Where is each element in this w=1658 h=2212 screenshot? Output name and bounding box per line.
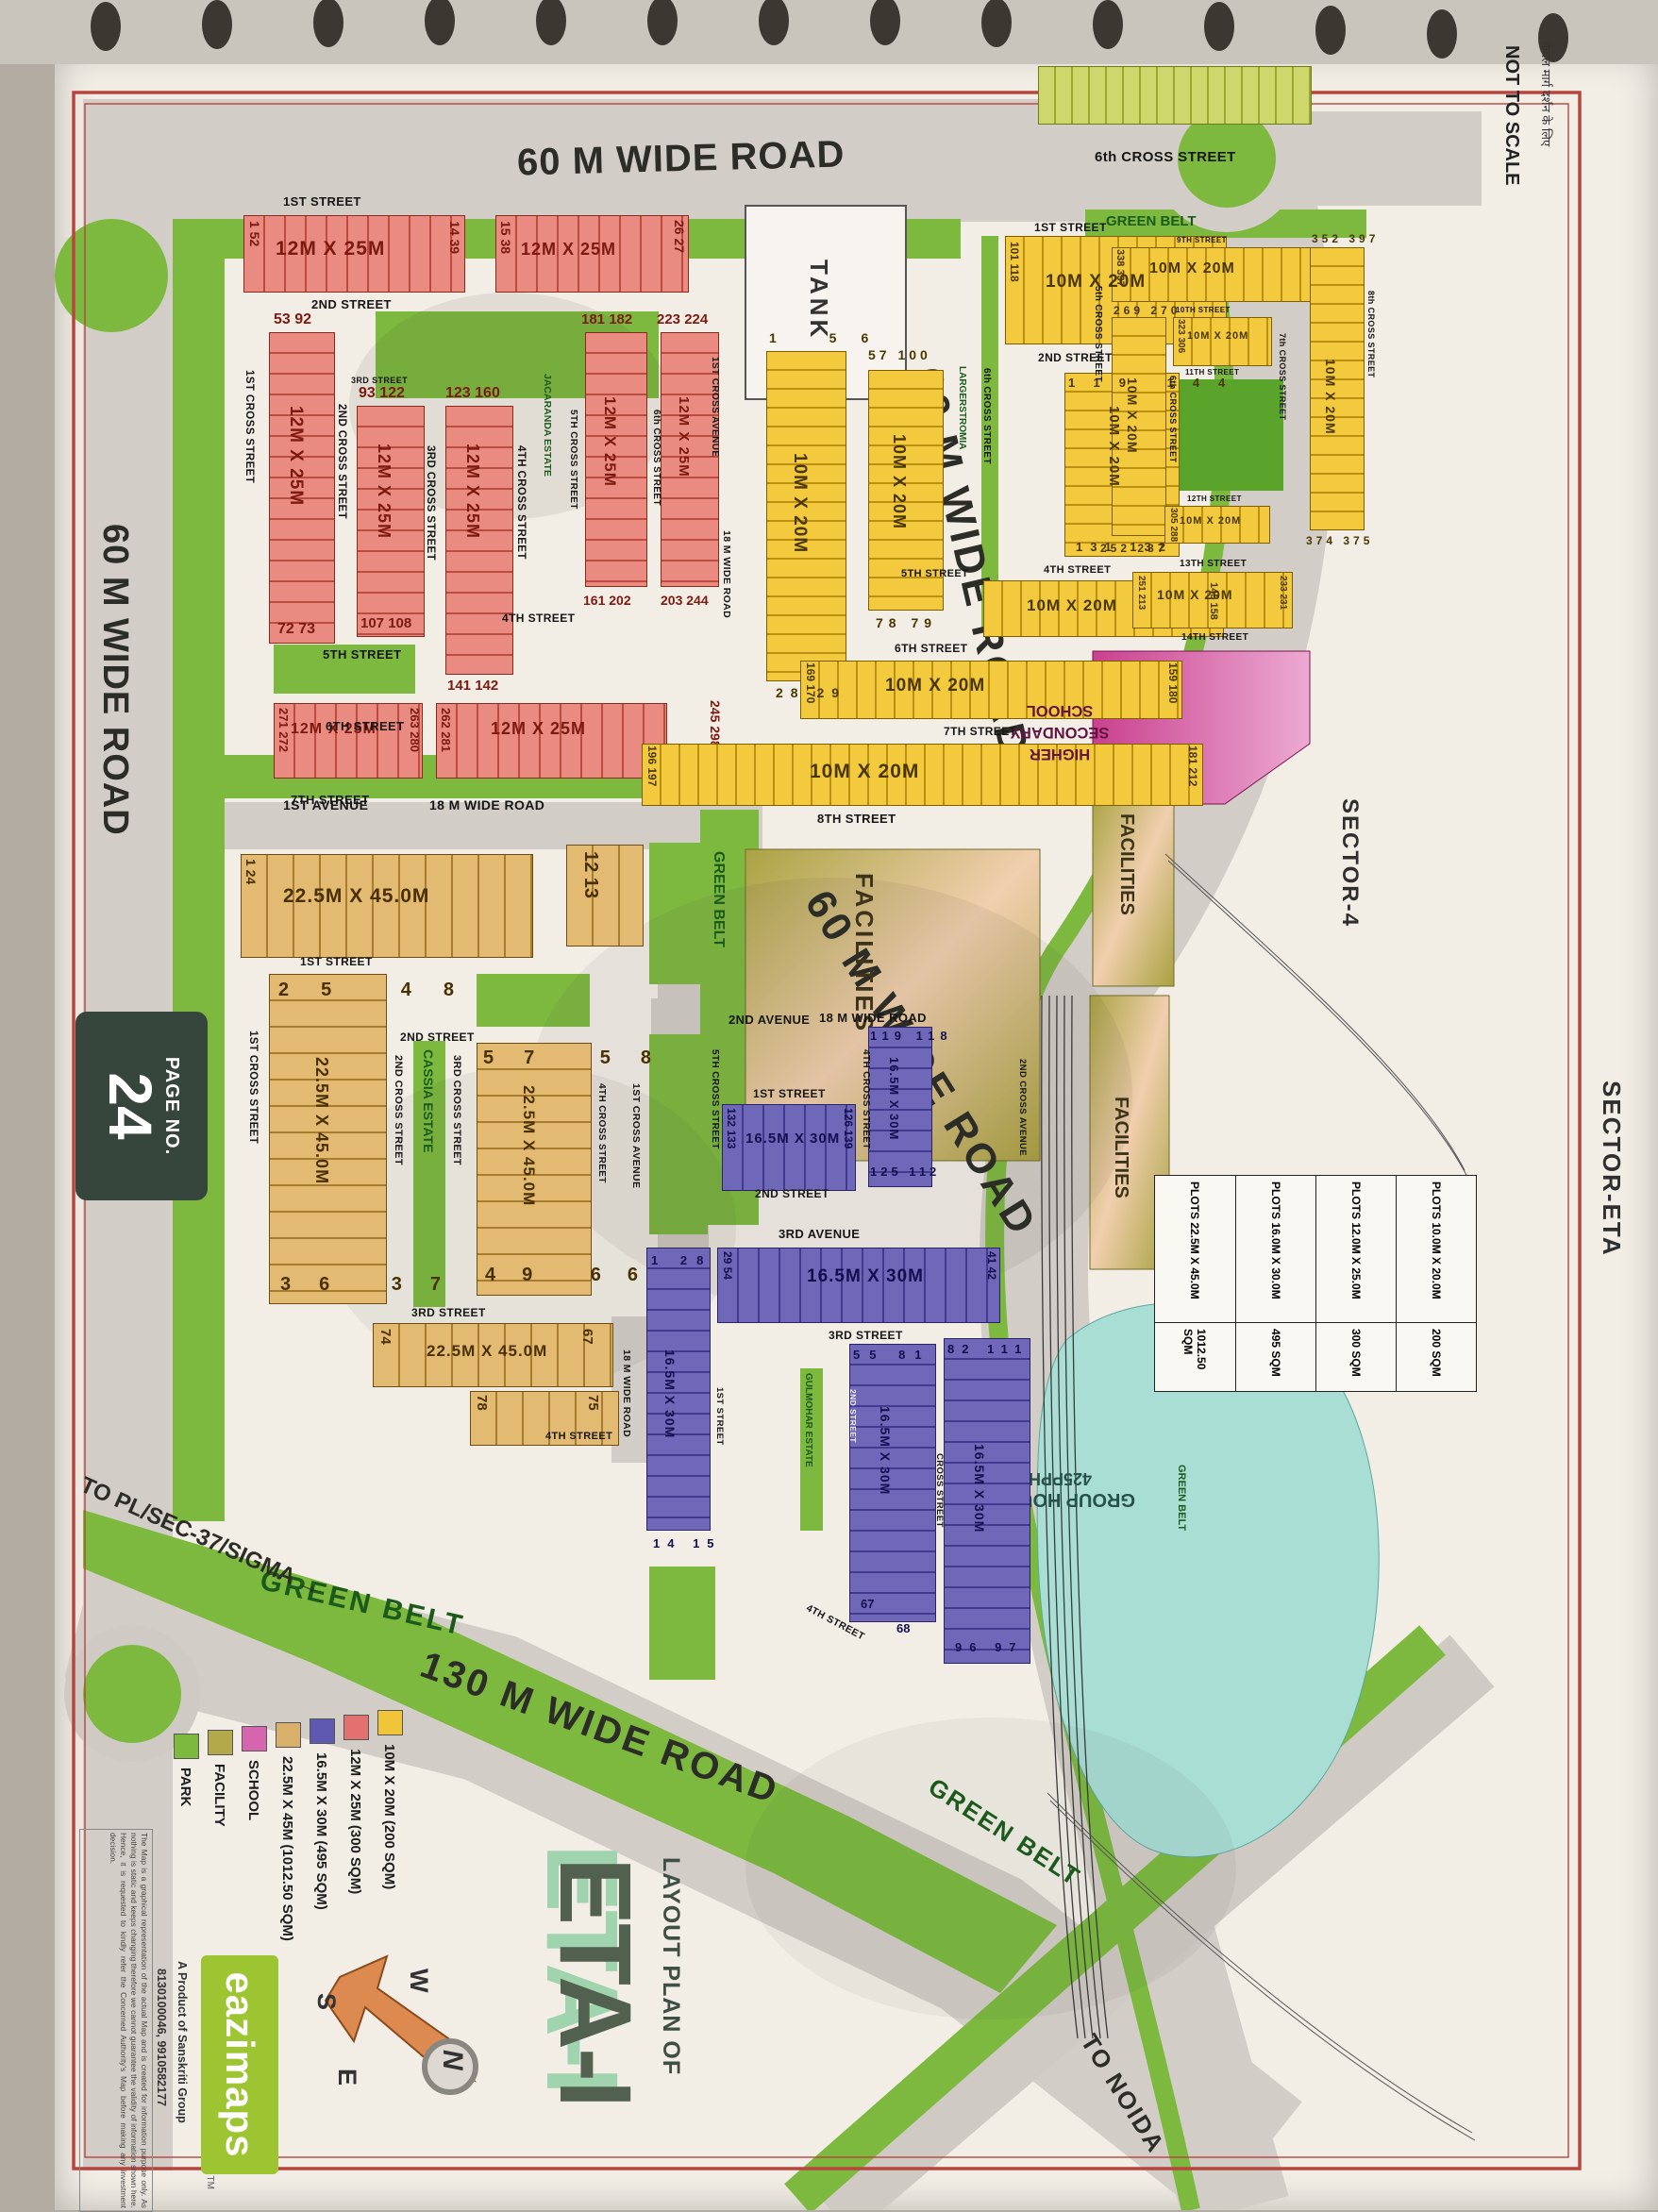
red-dims-rt1: 12M X 25M bbox=[276, 238, 385, 260]
yellow-dims: 10M X 20M bbox=[1323, 359, 1338, 500]
tan-num: 36 37 bbox=[280, 1274, 469, 1296]
red-dims-rt2: 12M X 25M bbox=[521, 240, 616, 260]
street-label-rot: 1ST STREET bbox=[714, 1387, 725, 1482]
yellow-num: 145 158 bbox=[1208, 582, 1219, 635]
cross-street-label: 4TH CROSS STREET bbox=[515, 445, 527, 615]
legend-chip-red bbox=[343, 1715, 369, 1740]
yellow-num: 374 375 bbox=[1306, 534, 1373, 547]
red-dims-rv3: 12M X 25M bbox=[462, 444, 482, 623]
cross-avenue-label: 1ST CROSS AVENUE bbox=[630, 1083, 642, 1286]
roundabout-topleft bbox=[55, 219, 168, 332]
frame-hindi-note: केवल मार्ग दर्शन के लिए bbox=[1538, 42, 1555, 193]
yellow-num: 269 270 bbox=[1114, 304, 1181, 317]
estate-label-gulmohar: GULMOHAR ESTATE bbox=[803, 1373, 813, 1529]
street-label: 1ST STREET bbox=[283, 194, 361, 209]
yellow-num: 233 231 bbox=[1278, 576, 1288, 627]
red-num: 15 38 bbox=[498, 221, 513, 287]
street-label: 4TH STREET bbox=[545, 1431, 612, 1442]
legend-chip-yellow bbox=[377, 1710, 403, 1735]
school-line1: HIGHER SECONDARY SCHOOL bbox=[989, 699, 1130, 764]
street-label: 9TH STREET bbox=[1177, 236, 1227, 244]
blue-dims: 16.5M X 30M bbox=[662, 1349, 678, 1482]
tan-dims: 22.5M X 45.0M bbox=[427, 1342, 547, 1361]
tan-num: 78 bbox=[474, 1395, 490, 1444]
avenue-label: 3RD AVENUE bbox=[779, 1227, 860, 1241]
blue-num: 41 42 bbox=[985, 1251, 998, 1321]
blue-block-B3a bbox=[646, 1248, 711, 1531]
cross-street-label: 3RD CROSS STREET bbox=[451, 1055, 462, 1267]
tan-block-T0b bbox=[566, 845, 644, 947]
red-block-rb1 bbox=[274, 703, 423, 779]
blue-dims: 16.5M X 30M bbox=[887, 1057, 901, 1170]
street-label: 13TH STREET bbox=[1180, 559, 1247, 569]
tan-dims: 22.5M X 45.0M bbox=[519, 1085, 538, 1265]
road-label-18m: 18 M WIDE ROAD bbox=[429, 797, 544, 813]
cross-street-label: 5TH CROSS STREET bbox=[568, 410, 578, 551]
facilities-label-strip2: FACILITIES bbox=[1110, 1097, 1131, 1262]
yellow-dims: 10M X 20M bbox=[1149, 260, 1235, 277]
street-label: 3RD STREET bbox=[829, 1329, 903, 1342]
blue-num: 67 bbox=[861, 1597, 874, 1611]
tan-num: 67 bbox=[579, 1329, 595, 1383]
blue-block-B5 bbox=[944, 1338, 1030, 1664]
red-num: 263 280 bbox=[408, 708, 422, 776]
red-num: 26 27 bbox=[672, 220, 687, 288]
cross-street-label: 2ND CROSS STREET bbox=[336, 404, 347, 569]
blue-num: 14 15 bbox=[653, 1536, 722, 1550]
blue-dims: 16.5M X 30M bbox=[972, 1444, 987, 1585]
facilities-label-strip1: FACILITIES bbox=[1115, 813, 1137, 979]
disclaimer-block: The Map is a graphical representation of… bbox=[87, 1829, 153, 2204]
green-belt-label-cyan-side: GREEN BELT bbox=[1176, 1465, 1187, 1597]
cross-street-label: 3RD CROSS STREET bbox=[425, 445, 436, 615]
legend-label: FACILITY bbox=[211, 1764, 227, 1896]
cross-street-label: 7th CROSS STREET bbox=[1278, 333, 1287, 444]
table-row-value: 200 SQM bbox=[1397, 1323, 1476, 1391]
tan-num: 74 bbox=[377, 1329, 394, 1383]
legend-chip-facility bbox=[208, 1730, 233, 1755]
street-label: 1ST STREET bbox=[1034, 221, 1107, 234]
yellow-num: 78 79 bbox=[876, 615, 937, 630]
blue-num: 119 118 bbox=[870, 1029, 953, 1043]
road-label-60m-left: 60 M WIDE ROAD bbox=[94, 524, 135, 863]
cross-street-label: 4TH CROSS STREET bbox=[596, 1083, 607, 1272]
photographed-map-page: { "frame":{"not_to_scale":"NOT TO SCALE"… bbox=[0, 0, 1658, 2210]
blue-num: 29 54 bbox=[721, 1251, 734, 1321]
red-num: 223 224 bbox=[657, 311, 708, 327]
page-number-badge: PAGE NO. 24 bbox=[75, 1012, 208, 1200]
yellow-num: 159 180 bbox=[1166, 662, 1180, 717]
red-dims-rv2: 12M X 25M bbox=[374, 444, 394, 613]
street-label: 2ND STREET bbox=[400, 1031, 475, 1044]
legend-label: 22.5M X 45M (1012.50 SQM) bbox=[279, 1756, 295, 2134]
street-label: 8TH STREET bbox=[817, 812, 896, 826]
red-num: 107 108 bbox=[360, 615, 411, 631]
red-dims-rv1: 12M X 25M bbox=[285, 406, 306, 595]
yellow-dims: 10M X 20M bbox=[789, 453, 810, 642]
blue-dims: 16.5M X 30M bbox=[745, 1131, 840, 1147]
red-num: 271 272 bbox=[276, 708, 291, 776]
cross-street-label: 6th CROSS STREET bbox=[651, 410, 662, 551]
street-label: 10TH STREET bbox=[1176, 306, 1231, 314]
tan-num: 12 13 bbox=[579, 851, 601, 940]
street-label: 1ST STREET bbox=[300, 955, 373, 968]
red-num: 72 73 bbox=[277, 621, 315, 638]
yellow-num: 57 100 bbox=[868, 347, 931, 362]
estate-label-largerstromia: LARGERSTROMIA bbox=[957, 366, 967, 538]
yellow-dims: 10M X 20M bbox=[1187, 330, 1248, 342]
red-num: 14 39 bbox=[447, 221, 462, 287]
street-label: 1ST STREET bbox=[753, 1087, 826, 1100]
street-label: 5TH STREET bbox=[901, 568, 968, 579]
cross-street-label: 5TH CROSS STREET bbox=[710, 1049, 720, 1170]
estate-label-cassia: CASSIA ESTATE bbox=[421, 1049, 436, 1300]
title-eta-main: ETA-I bbox=[537, 1857, 655, 2106]
street-label: 2ND STREET bbox=[311, 297, 392, 311]
cross-street-label: 6th CROSS STREET bbox=[1168, 376, 1178, 481]
red-dims-rv4: 12M X 25M bbox=[600, 396, 619, 557]
street-label-6th-cross-top: 6th CROSS STREET bbox=[1095, 149, 1236, 165]
compass-e: E bbox=[332, 2069, 361, 2086]
road-label-18m-upper: 18 M WIDE ROAD bbox=[721, 530, 732, 644]
red-num: 262 281 bbox=[439, 708, 453, 776]
spiral-holes bbox=[91, 0, 1568, 62]
table-row-value: 1012.50 SQM bbox=[1155, 1323, 1235, 1391]
cross-avenue-label: 2ND CROSS AVENUE bbox=[1017, 1059, 1028, 1191]
plot-strip-chartreuse bbox=[1038, 66, 1312, 125]
street-label: 12TH STREET bbox=[1187, 494, 1242, 503]
blue-dims: 16.5M X 30M bbox=[878, 1406, 893, 1538]
street-label: 6TH STREET bbox=[326, 719, 404, 733]
red-num: 181 182 bbox=[581, 311, 632, 327]
page-no-value: 24 bbox=[101, 1072, 161, 1139]
yellow-num: 196 197 bbox=[645, 746, 659, 802]
street-label: 3RD STREET bbox=[411, 1306, 486, 1319]
cross-street-label: 1ST CROSS STREET bbox=[243, 370, 255, 530]
red-num: 123 160 bbox=[445, 385, 500, 402]
legend-chip-blue bbox=[310, 1718, 335, 1744]
red-num: 93 122 bbox=[359, 385, 405, 402]
yellow-dims: 10M X 20M bbox=[1157, 587, 1233, 602]
red-block-rb2 bbox=[436, 703, 667, 779]
tan-num: 1 24 bbox=[243, 859, 259, 953]
plot-size-table: PLOTS 10.0M X 20.0M 200 SQM PLOTS 12.0M … bbox=[1156, 1175, 1477, 1390]
blue-num: 96 97 bbox=[955, 1640, 1024, 1654]
yellow-num: 181 212 bbox=[1186, 746, 1199, 802]
blue-dims: 16.5M X 30M bbox=[807, 1266, 924, 1287]
branding-phone: 8130100046, 9910582177 bbox=[155, 1969, 168, 2178]
red-num: 203 244 bbox=[661, 593, 709, 608]
estate-label-jacaranda: JACARANDA ESTATE bbox=[542, 374, 553, 544]
cross-street-label: 8th CROSS STREET bbox=[1366, 291, 1376, 411]
blue-num: 132 133 bbox=[725, 1108, 738, 1187]
street-label: 4TH STREET bbox=[502, 612, 575, 625]
cross-street-label: 5th CROSS STREET bbox=[1093, 286, 1103, 404]
legend-chip-park bbox=[174, 1734, 199, 1759]
yellow-num: 101 118 bbox=[1008, 242, 1021, 338]
cross-street-label: 1ST CROSS STREET bbox=[247, 1031, 259, 1233]
street-label: 3RD STREET bbox=[351, 376, 408, 385]
table-row-label: PLOTS 10.0M X 20.0M bbox=[1397, 1176, 1476, 1323]
table-row-label: PLOTS 22.5M X 45.0M bbox=[1155, 1176, 1235, 1323]
frame-not-to-scale: NOT TO SCALE bbox=[1500, 45, 1522, 234]
road-label-18m: 18 M WIDE ROAD bbox=[819, 1011, 927, 1025]
yellow-num: 352 397 bbox=[1312, 232, 1379, 245]
yellow-dims: 10M X 20M bbox=[1180, 515, 1241, 527]
road-label-18m-lower: 18 M WIDE ROAD bbox=[621, 1349, 632, 1482]
yellow-num: 323 306 bbox=[1176, 319, 1186, 364]
street-label: 4TH STREET bbox=[1044, 564, 1111, 576]
yellow-num: 305 288 bbox=[1168, 508, 1179, 544]
tan-num: 57 58 bbox=[483, 1047, 681, 1069]
street-label: 11TH STREET bbox=[1185, 368, 1239, 377]
tan-num: 25 48 bbox=[278, 980, 486, 1001]
red-num: 161 202 bbox=[583, 593, 631, 608]
avenue-label: 2ND AVENUE bbox=[729, 1013, 810, 1027]
street-label: 2ND STREET bbox=[755, 1187, 829, 1200]
logo-tm: TM bbox=[205, 2176, 215, 2189]
red-dims-rv5: 12M X 25M bbox=[676, 396, 692, 547]
yellow-dims: 10M X 20M bbox=[810, 761, 919, 783]
table-row-value: 300 SQM bbox=[1316, 1323, 1396, 1391]
legend-label: PARK bbox=[177, 1768, 193, 1871]
road-label-60m-top: 60 M WIDE ROAD bbox=[516, 133, 845, 184]
blue-num: 125 112 bbox=[870, 1165, 940, 1179]
yellow-dims: 10M X 20M bbox=[1125, 377, 1140, 510]
yellow-num: 169 170 bbox=[804, 662, 817, 717]
avenue-label: 1ST AVENUE bbox=[283, 797, 368, 813]
park-block bbox=[1168, 379, 1283, 491]
green-belt-label-topright: GREEN BELT bbox=[1106, 213, 1197, 229]
yellow-dims: 10M X 20M bbox=[1106, 406, 1122, 538]
red-num: 1 52 bbox=[247, 221, 262, 287]
street-label: 14TH STREET bbox=[1181, 632, 1248, 643]
cross-street-label: 4TH CROSS STREET bbox=[861, 1049, 871, 1170]
red-dims-rb2: 12M X 25M bbox=[491, 719, 586, 739]
green-belt-label-center: GREEN BELT bbox=[710, 851, 727, 1012]
roundabout-bottomleft bbox=[83, 1645, 181, 1743]
red-num: 53 92 bbox=[274, 311, 311, 328]
blue-num: 82 111 bbox=[947, 1342, 1029, 1356]
branding-product: A Product of Sanskriti Group bbox=[176, 1961, 189, 2180]
cross-avenue-label: 1ST CROSS AVENUE bbox=[710, 357, 720, 510]
frame-sector-eta: SECTOR-ETA bbox=[1597, 1081, 1626, 1307]
blue-num: 68 bbox=[896, 1621, 910, 1635]
red-num: 141 142 bbox=[447, 678, 498, 694]
cross-street-label: 6th CROSS STREET bbox=[981, 368, 992, 524]
blue-block-B1 bbox=[722, 1104, 856, 1191]
school-label: HIGHER SECONDARY SCHOOL bbox=[989, 661, 1130, 764]
logo-text: eazimaps bbox=[217, 1971, 262, 2157]
yellow-num: 338 337 bbox=[1114, 249, 1126, 300]
yellow-dims: 10M X 20M bbox=[885, 676, 985, 696]
compass-s: S bbox=[311, 1993, 341, 2010]
yellow-num: 1 56 bbox=[769, 330, 893, 345]
yellow-num: 252 287 bbox=[1100, 542, 1167, 555]
legend-chip-tan bbox=[276, 1722, 301, 1748]
yellow-num: 251 213 bbox=[1136, 576, 1147, 627]
table-row-label: PLOTS 16.0M X 30.0M bbox=[1236, 1176, 1315, 1323]
legend-chip-school bbox=[242, 1726, 267, 1751]
disclaimer-text: The Map is a graphical representation of… bbox=[79, 1829, 153, 2212]
map-title: LAYOUT PLAN OF ETA-I ETA-I bbox=[462, 1857, 684, 2197]
tan-dims: 22.5M X 45.0M bbox=[283, 885, 429, 908]
street-label: 5TH STREET bbox=[323, 647, 401, 662]
blue-num: 1 28 bbox=[651, 1253, 712, 1267]
table-row-value: 495 SQM bbox=[1236, 1323, 1315, 1391]
compass-w: W bbox=[404, 1969, 433, 1992]
yellow-block-B bbox=[1173, 317, 1272, 366]
blue-num: 126 139 bbox=[842, 1108, 855, 1187]
eazimaps-logo: eazimaps TM bbox=[201, 1955, 278, 2174]
street-label-rot: 2ND STREET bbox=[848, 1389, 858, 1469]
cross-street-label: CROSS STREET bbox=[934, 1453, 945, 1557]
table-row-label: PLOTS 12.0M X 25.0M bbox=[1316, 1176, 1396, 1323]
yellow-dims: 10M X 20M bbox=[1027, 596, 1117, 615]
tan-dims: 22.5M X 45.0M bbox=[311, 1057, 331, 1246]
street-label: 6TH STREET bbox=[895, 642, 967, 655]
legend-label: SCHOOL bbox=[245, 1760, 261, 1892]
frame-sector4: SECTOR-4 bbox=[1336, 798, 1363, 959]
title-line1: LAYOUT PLAN OF bbox=[657, 1857, 684, 2197]
blue-num: 55 81 bbox=[853, 1348, 931, 1362]
cross-street-label: 2ND CROSS STREET bbox=[393, 1055, 404, 1267]
blue-block-B4 bbox=[849, 1344, 936, 1622]
